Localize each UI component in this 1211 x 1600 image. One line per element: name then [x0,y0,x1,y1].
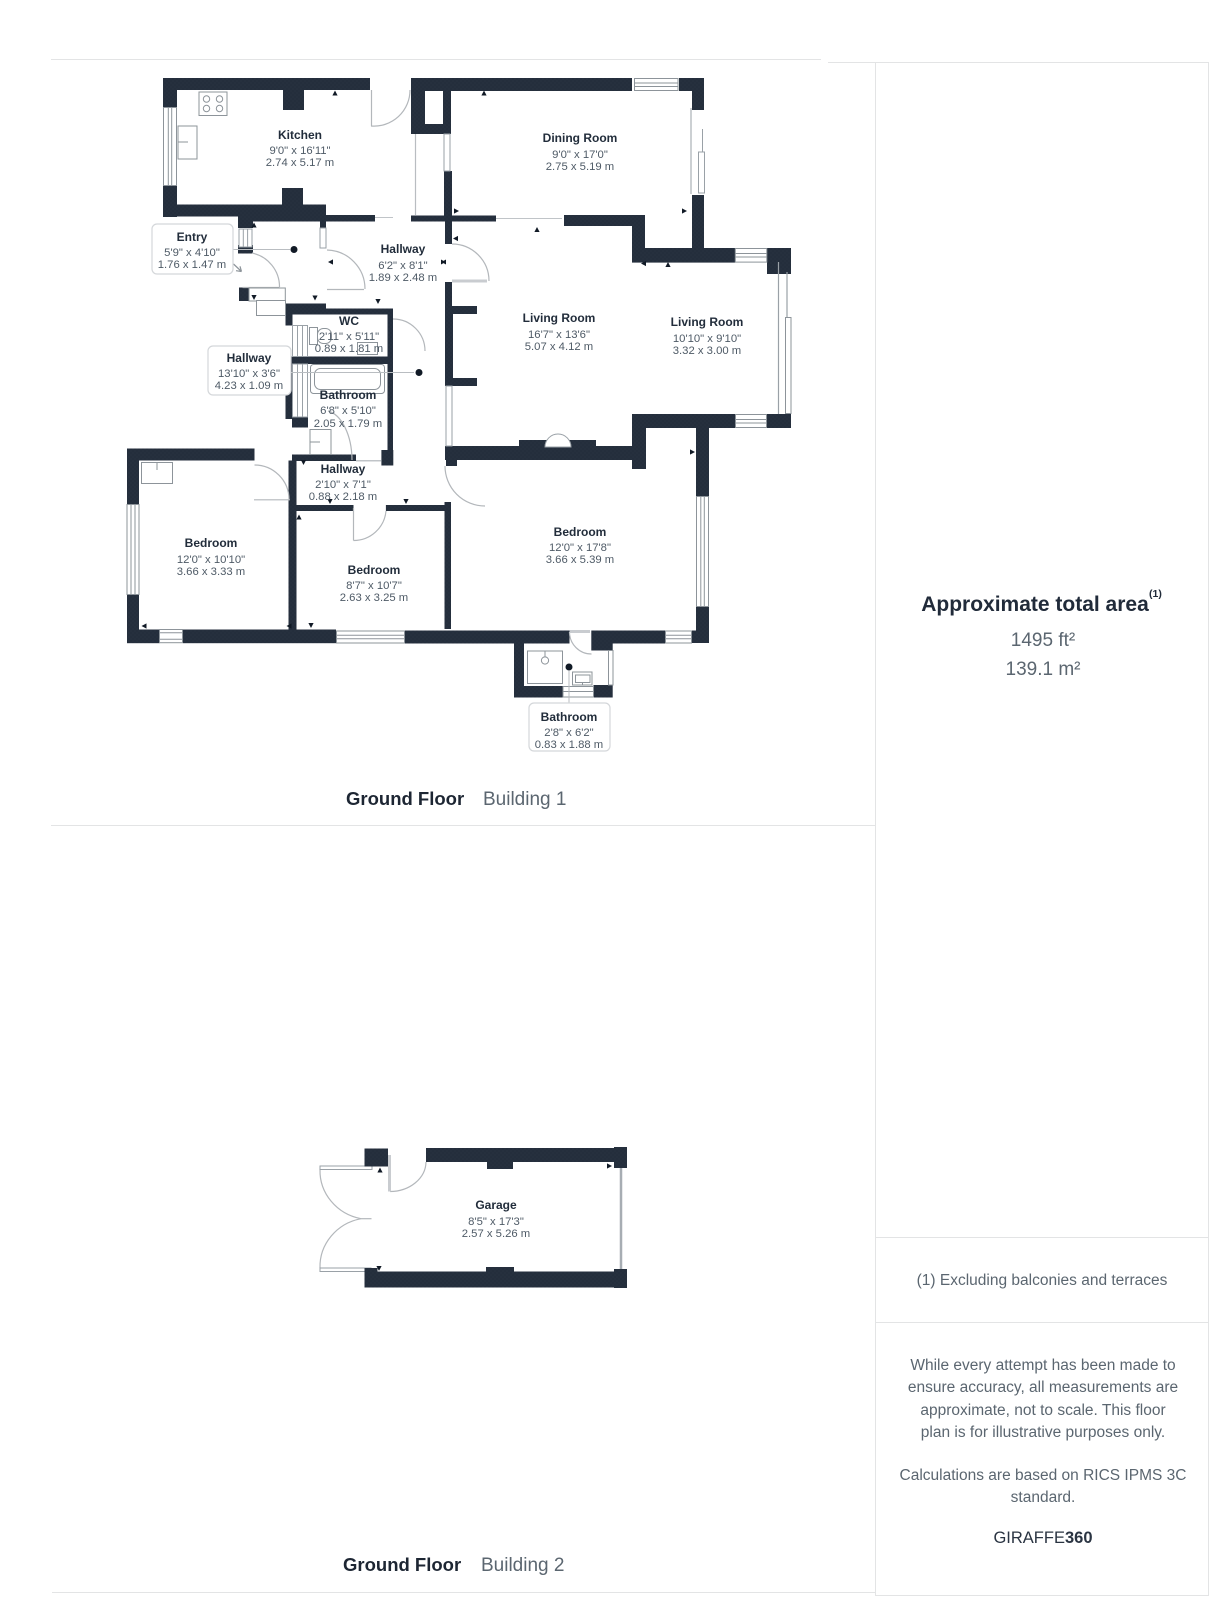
svg-text:3.66 x 5.39 m: 3.66 x 5.39 m [546,554,614,566]
svg-text:3.32 x 3.00 m: 3.32 x 3.00 m [673,345,741,357]
svg-text:(1) Excluding balconies and te: (1) Excluding balconies and terraces [917,1272,1168,1289]
svg-text:2.57 x 5.26 m: 2.57 x 5.26 m [462,1228,530,1240]
svg-text:Entry: Entry [177,230,208,244]
svg-text:2.63 x 3.25 m: 2.63 x 3.25 m [340,592,408,604]
svg-text:6'2" x 8'1": 6'2" x 8'1" [378,260,427,272]
svg-text:Kitchen: Kitchen [278,128,322,142]
svg-text:0.89 x 1.81 m: 0.89 x 1.81 m [315,343,383,355]
svg-text:0.88 x 2.18 m: 0.88 x 2.18 m [309,491,377,503]
svg-text:2.75 x 5.19 m: 2.75 x 5.19 m [546,161,614,173]
svg-text:Approximate total area: Approximate total area [921,593,1149,616]
svg-text:Living Room: Living Room [523,311,596,325]
svg-text:Bedroom: Bedroom [348,563,401,577]
svg-text:Hallway: Hallway [381,242,426,256]
svg-text:9'0" x 16'11": 9'0" x 16'11" [269,145,330,157]
svg-text:3.66 x 3.33 m: 3.66 x 3.33 m [177,566,245,578]
svg-text:8'7" x 10'7": 8'7" x 10'7" [346,580,402,592]
svg-text:2.74 x 5.17 m: 2.74 x 5.17 m [266,157,334,169]
svg-text:Dining Room: Dining Room [543,131,618,145]
svg-text:1.76 x 1.47 m: 1.76 x 1.47 m [158,259,226,271]
svg-text:0.83 x 1.88 m: 0.83 x 1.88 m [535,739,603,751]
svg-text:139.1 m²: 139.1 m² [1006,659,1081,680]
svg-text:While every attempt has been m: While every attempt has been made to [910,1357,1175,1374]
svg-text:8'5" x 17'3": 8'5" x 17'3" [468,1216,524,1228]
svg-text:6'8" x 5'10": 6'8" x 5'10" [320,405,376,417]
svg-text:2'10" x 7'1": 2'10" x 7'1" [315,479,371,491]
svg-text:GIRAFFE360: GIRAFFE360 [993,1529,1092,1547]
svg-text:Bathroom: Bathroom [320,388,377,402]
svg-text:1495 ft²: 1495 ft² [1011,630,1075,651]
svg-text:1.89 x 2.48 m: 1.89 x 2.48 m [369,272,437,284]
svg-text:Ground Floor: Ground Floor [346,788,464,809]
svg-text:Bedroom: Bedroom [554,525,607,539]
svg-text:5.07 x 4.12 m: 5.07 x 4.12 m [525,341,593,353]
svg-text:12'0" x 17'8": 12'0" x 17'8" [549,542,611,554]
svg-text:approximate, not to scale. Thi: approximate, not to scale. This floor [920,1402,1165,1419]
svg-text:Building 1: Building 1 [483,789,566,810]
svg-text:plan is for illustrative purpo: plan is for illustrative purposes only. [921,1424,1165,1441]
svg-text:12'0" x 10'10": 12'0" x 10'10" [177,554,245,566]
svg-text:Bathroom: Bathroom [541,710,598,724]
svg-text:WC: WC [339,314,359,328]
svg-text:ensure accuracy, all measureme: ensure accuracy, all measurements are [908,1379,1178,1396]
svg-text:9'0" x 17'0": 9'0" x 17'0" [552,149,608,161]
svg-text:5'9" x 4'10": 5'9" x 4'10" [164,247,220,259]
svg-text:4.23 x 1.09 m: 4.23 x 1.09 m [215,380,283,392]
svg-text:Building 2: Building 2 [481,1555,564,1576]
svg-text:Ground Floor: Ground Floor [343,1554,461,1575]
svg-text:16'7" x 13'6": 16'7" x 13'6" [528,329,590,341]
svg-text:standard.: standard. [1011,1489,1076,1506]
svg-text:2'8" x 6'2": 2'8" x 6'2" [544,727,593,739]
svg-text:Garage: Garage [475,1198,517,1212]
svg-text:Hallway: Hallway [227,351,272,365]
svg-text:10'10" x 9'10": 10'10" x 9'10" [673,333,741,345]
svg-text:Living Room: Living Room [671,315,744,329]
svg-text:13'10" x 3'6": 13'10" x 3'6" [218,368,280,380]
svg-text:2'11" x 5'11": 2'11" x 5'11" [319,331,379,343]
svg-text:Hallway: Hallway [321,462,366,476]
svg-text:(1): (1) [1149,588,1162,600]
svg-text:Calculations are based on RICS: Calculations are based on RICS IPMS 3C [900,1467,1187,1484]
svg-text:Bedroom: Bedroom [185,536,238,550]
svg-text:2.05 x 1.79 m: 2.05 x 1.79 m [314,418,382,430]
